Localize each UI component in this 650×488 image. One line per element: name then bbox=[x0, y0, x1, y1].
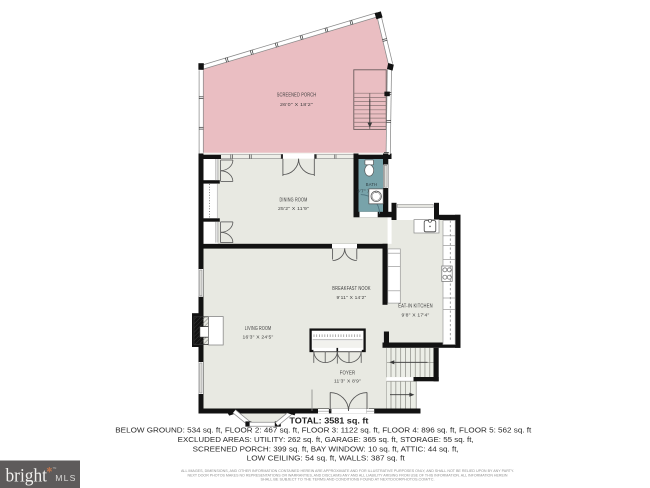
svg-text:EAT-IN KITCHEN: EAT-IN KITCHEN bbox=[398, 304, 433, 310]
svg-text:BREAKFAST NOOK: BREAKFAST NOOK bbox=[332, 286, 371, 292]
svg-text:TM: TM bbox=[53, 466, 57, 470]
svg-text:16'3" X 24'5": 16'3" X 24'5" bbox=[243, 334, 274, 340]
svg-text:BATH: BATH bbox=[366, 182, 378, 187]
svg-text:LOW CEILING: 54 sq. ft, WALLS:: LOW CEILING: 54 sq. ft, WALLS: 387 sq. f… bbox=[247, 454, 406, 463]
svg-text:26'0" X 18'2": 26'0" X 18'2" bbox=[280, 102, 313, 108]
svg-text:FOYER: FOYER bbox=[340, 371, 356, 377]
svg-text:MLS: MLS bbox=[55, 473, 76, 483]
svg-text:11'3" X 8'9": 11'3" X 8'9" bbox=[334, 379, 361, 385]
svg-text:SHALL BE SUBJECT TO THE TERMS: SHALL BE SUBJECT TO THE TERMS AND CONDIT… bbox=[261, 478, 435, 482]
svg-text:EXCLUDED AREAS: UTILITY: 262 s: EXCLUDED AREAS: UTILITY: 262 sq. ft, GAR… bbox=[178, 435, 474, 444]
svg-text:ALL IMAGES, DIMENSIONS, AND OT: ALL IMAGES, DIMENSIONS, AND OTHER INFORM… bbox=[181, 469, 514, 473]
svg-text:SCREENED PORCH: 399 sq. ft, BA: SCREENED PORCH: 399 sq. ft, BAY WINDOW: … bbox=[193, 444, 459, 453]
svg-text:BELOW GROUND: 534 sq. ft, FLOO: BELOW GROUND: 534 sq. ft, FLOOR 2: 467 s… bbox=[115, 426, 532, 435]
svg-text:bright: bright bbox=[6, 465, 48, 486]
svg-text:9'8" X 17'4": 9'8" X 17'4" bbox=[402, 313, 430, 319]
svg-text:LIVING ROOM: LIVING ROOM bbox=[245, 326, 272, 332]
svg-text:25'2" X 11'9": 25'2" X 11'9" bbox=[278, 206, 309, 212]
svg-text:DINING ROOM: DINING ROOM bbox=[280, 198, 308, 204]
svg-text:SCREENED PORCH: SCREENED PORCH bbox=[277, 93, 317, 99]
svg-text:9'11" X 14'2": 9'11" X 14'2" bbox=[337, 295, 367, 301]
svg-text:TOTAL: 3581 sq. ft: TOTAL: 3581 sq. ft bbox=[289, 416, 368, 425]
